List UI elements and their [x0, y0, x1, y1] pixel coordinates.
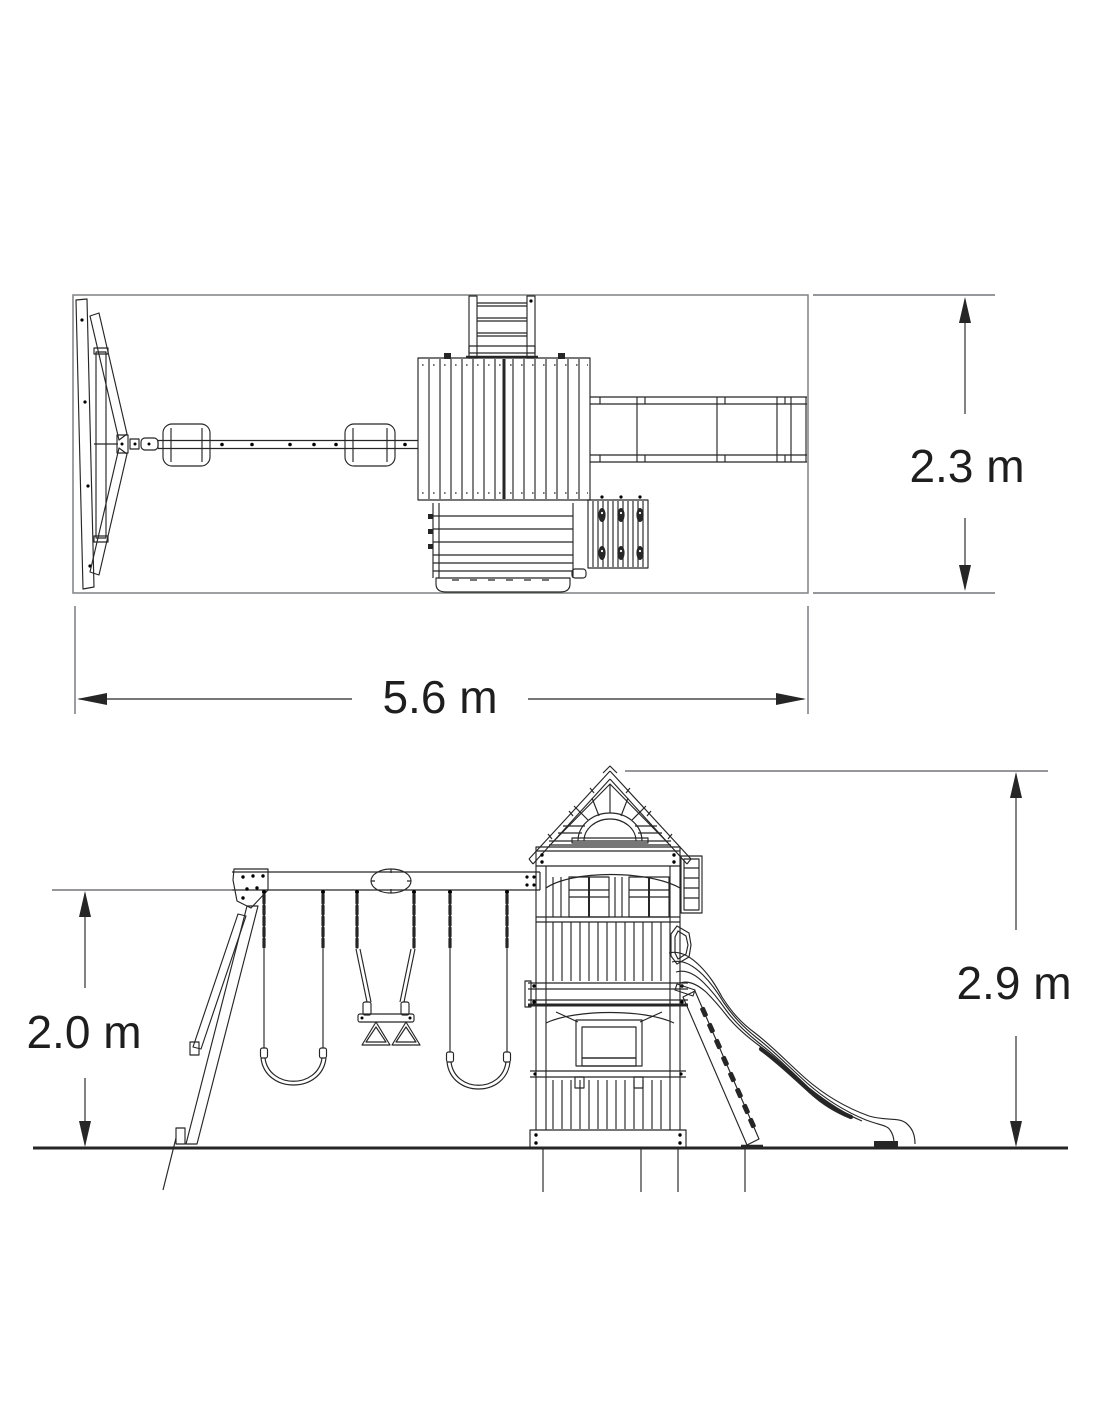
lower-deck-top-view — [428, 503, 586, 592]
ground-anchor — [163, 1138, 176, 1190]
arrow-down-icon — [1010, 1121, 1022, 1147]
steering-wheel-side — [671, 926, 691, 964]
dimensions: 2.3 m 5.6 m 2.0 m 2.9 m — [26, 295, 1071, 1147]
arrow-down-icon — [959, 565, 971, 591]
tower-side-view — [525, 766, 702, 1148]
dimension-label-plan-width: 5.6 m — [382, 671, 497, 723]
belt-swing-2 — [447, 949, 511, 1089]
ground-posts — [543, 1148, 745, 1192]
swings-side-view — [261, 890, 511, 1089]
top-view-plan — [73, 295, 808, 593]
arrow-up-icon — [959, 297, 971, 323]
a-frame-leg — [186, 906, 258, 1144]
tower-roof — [529, 766, 691, 864]
swing-beam-top-view — [158, 441, 418, 449]
swing-seats-top-view — [163, 424, 395, 466]
upper-window-left — [569, 877, 609, 917]
upper-window-right — [629, 877, 669, 917]
leg-brace-board — [193, 914, 246, 1049]
arrow-up-icon — [1010, 772, 1022, 798]
arrow-right-icon — [776, 693, 806, 705]
tower-lower-level — [530, 1012, 686, 1148]
side-view-elevation — [33, 766, 1068, 1192]
access-ladder-top-view — [466, 296, 538, 358]
deck-band — [525, 981, 688, 1007]
side-window-shutter — [681, 856, 702, 913]
dimension-label-plan-depth: 2.3 m — [909, 440, 1024, 492]
trapeze-glider — [356, 949, 420, 1045]
swing-frame-top-view — [76, 299, 158, 589]
gable-sunburst — [558, 784, 662, 843]
rock-wall-top-view — [588, 495, 648, 568]
rock-wall-side-view — [675, 984, 763, 1146]
arrow-up-icon — [79, 891, 91, 917]
dimension-label-tower-height: 2.9 m — [956, 957, 1071, 1009]
dimension-plan-depth: 2.3 m — [813, 295, 1025, 593]
playset-dimension-drawing: 2.3 m 5.6 m 2.0 m 2.9 m — [0, 0, 1100, 1422]
slide-top-view — [590, 397, 807, 462]
arrow-down-icon — [79, 1121, 91, 1147]
deck-top-view — [418, 353, 590, 500]
arrow-left-icon — [77, 693, 107, 705]
dimension-plan-width: 5.6 m — [75, 606, 808, 723]
dimension-swing-height: 2.0 m — [26, 890, 232, 1147]
dimension-label-swing-height: 2.0 m — [26, 1006, 141, 1058]
slide-foot-pad — [874, 1141, 898, 1147]
belt-swing-1 — [261, 949, 327, 1085]
